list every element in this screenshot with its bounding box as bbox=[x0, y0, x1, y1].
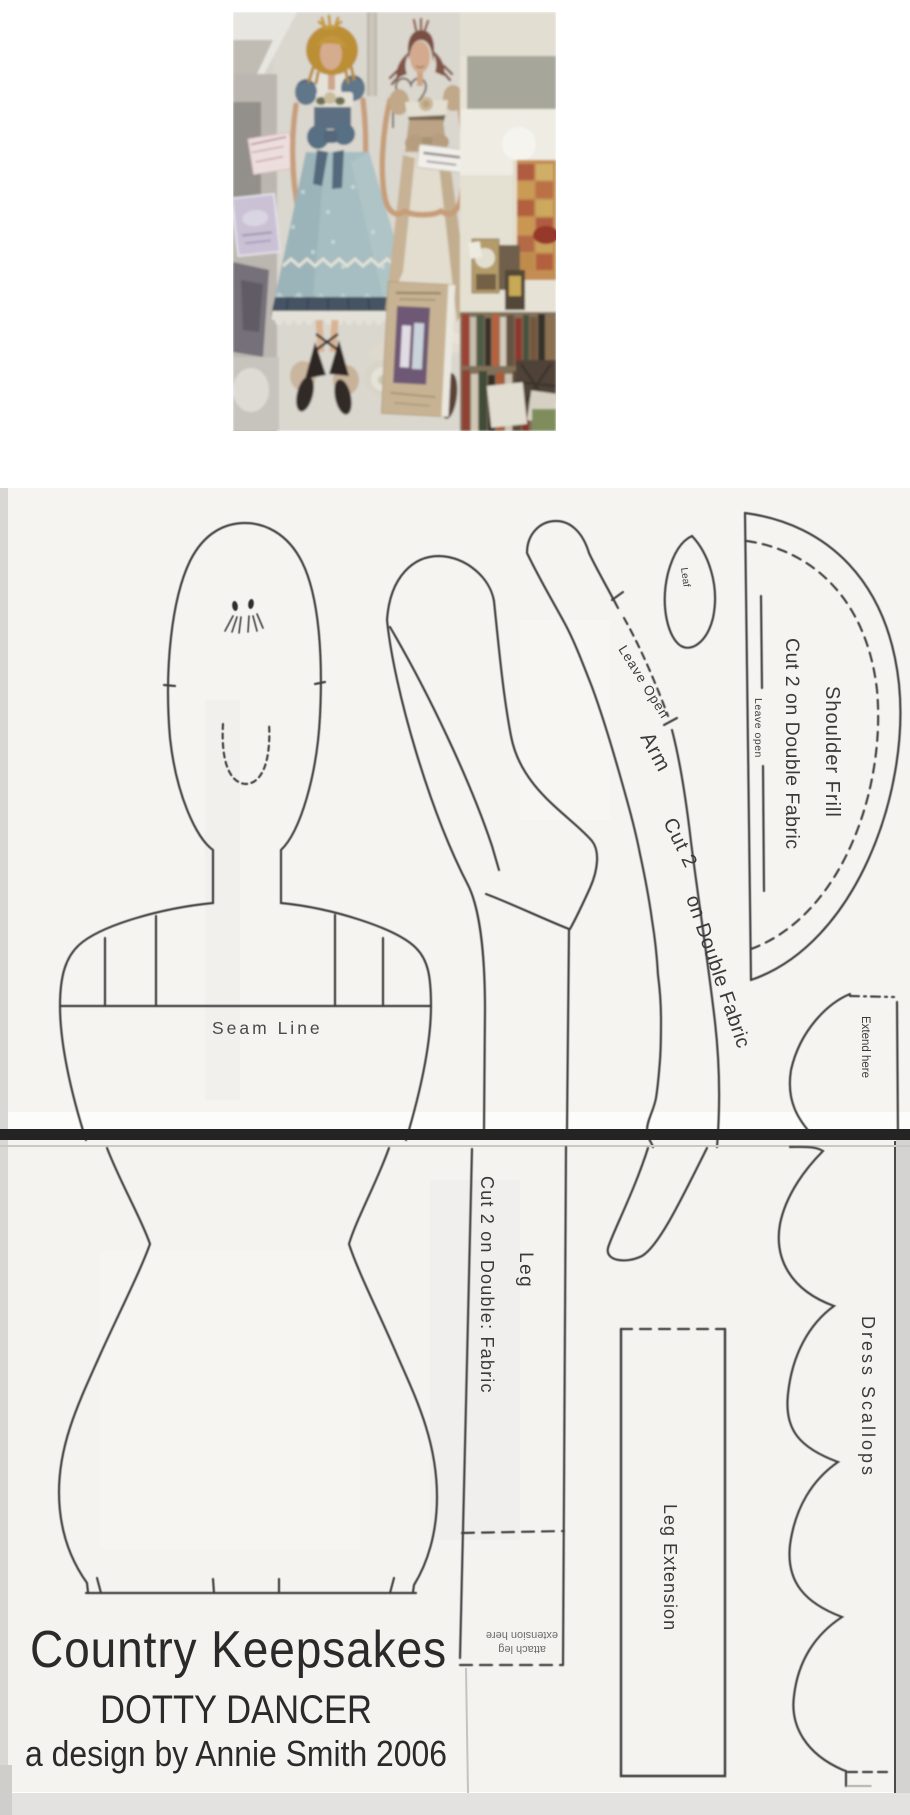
svg-text:Leg: Leg bbox=[515, 1252, 536, 1288]
svg-text:a design by Annie Smith 2006: a design by Annie Smith 2006 bbox=[25, 1733, 447, 1774]
svg-text:Seam Line: Seam Line bbox=[212, 1018, 323, 1038]
svg-text:Country Keepsakes: Country Keepsakes bbox=[30, 1621, 447, 1679]
svg-text:Leave open: Leave open bbox=[752, 698, 764, 758]
svg-text:Cut 2 on Double: Fabric: Cut 2 on Double: Fabric bbox=[477, 1176, 497, 1394]
svg-text:Cut 2 on Double Fabric: Cut 2 on Double Fabric bbox=[781, 638, 803, 850]
svg-text:Shoulder Frill: Shoulder Frill bbox=[821, 686, 843, 818]
svg-text:extension here: extension here bbox=[486, 1629, 558, 1641]
svg-text:Dress Scallops: Dress Scallops bbox=[858, 1316, 878, 1478]
svg-text:DOTTY DANCER: DOTTY DANCER bbox=[100, 1688, 372, 1732]
svg-text:attach leg: attach leg bbox=[498, 1643, 546, 1655]
svg-text:Leg Extension: Leg Extension bbox=[660, 1504, 680, 1631]
svg-text:Extend here: Extend here bbox=[859, 1016, 871, 1078]
